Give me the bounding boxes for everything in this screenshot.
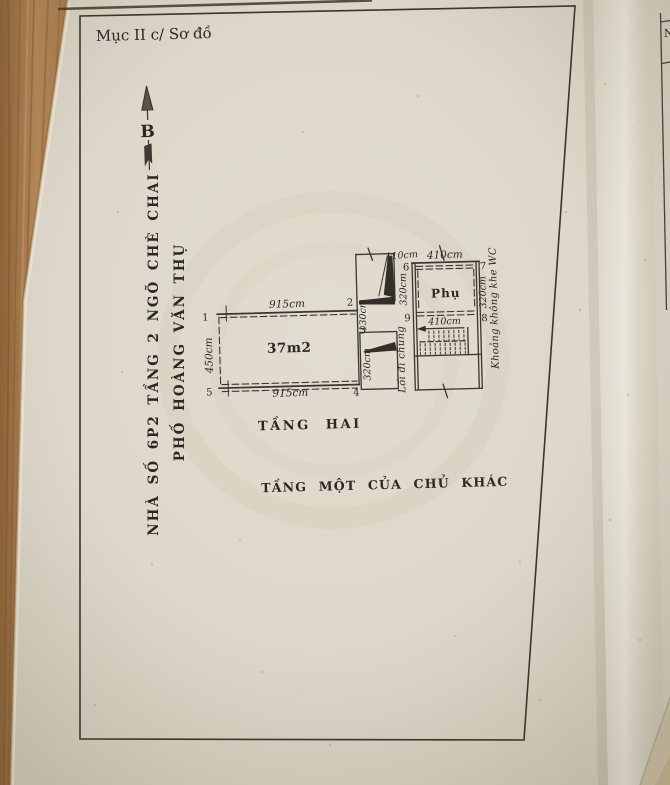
scanned-document: N Mục II c/ Sơ đồ B NHÀ SỐ 6P2 TẦNG 2 NG… xyxy=(0,0,670,785)
scan-vignette xyxy=(0,0,670,785)
document-canvas: N Mục II c/ Sơ đồ B NHÀ SỐ 6P2 TẦNG 2 NG… xyxy=(0,0,670,785)
